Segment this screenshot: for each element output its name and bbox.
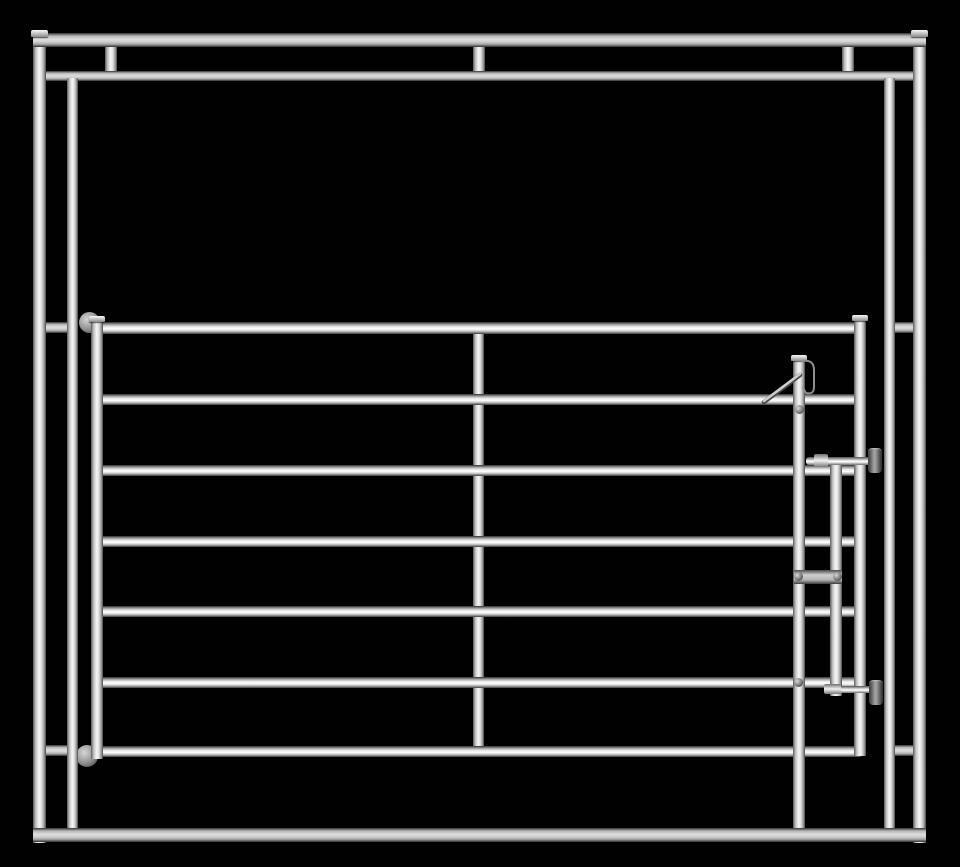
bolt-bracket-right <box>833 572 842 581</box>
side-link-upper-right <box>894 322 914 333</box>
latch-knob-bottom <box>869 680 883 705</box>
frame-inner-post-left <box>67 78 78 828</box>
latch-collar-top <box>814 454 828 467</box>
post-cap-left <box>31 30 48 37</box>
gate-rail-1 <box>96 322 861 334</box>
frame-top-rail <box>33 33 926 47</box>
latch-collar-bottom <box>824 684 841 694</box>
bolt-bracket-left <box>794 572 803 581</box>
post-cap-right <box>911 30 928 37</box>
corral-panel-product-image <box>0 0 960 867</box>
gate-rail-5 <box>96 606 861 617</box>
latch-drop-bar <box>793 357 805 838</box>
gate-stile-cap <box>89 316 105 322</box>
gate-rail-2 <box>96 394 861 405</box>
gate-end-cap <box>852 315 868 321</box>
frame-inner-post-right <box>884 78 895 828</box>
side-link-lower-right <box>894 745 914 756</box>
bolt-rail2 <box>795 405 804 414</box>
gate-stile-left <box>91 319 103 759</box>
gate-rail-7 <box>96 746 861 757</box>
frame-outer-post-left <box>33 34 46 843</box>
frame-top-rail-lower <box>45 71 913 81</box>
latch-knob-top <box>868 448 882 473</box>
header-link-left <box>105 45 117 73</box>
header-link-right <box>842 45 854 73</box>
bolt-rail6 <box>794 678 803 687</box>
gate-rail-3 <box>96 465 861 476</box>
header-link-center <box>473 45 485 73</box>
latch-spring-arm <box>762 371 802 403</box>
frame-bottom-rail <box>33 828 926 842</box>
frame-outer-post-right <box>913 34 926 843</box>
side-link-lower-left <box>44 745 68 756</box>
gate-rail-6 <box>96 677 861 688</box>
side-link-upper-left <box>44 322 68 333</box>
latch-hook <box>799 356 821 398</box>
gate-rail-4 <box>96 536 861 547</box>
